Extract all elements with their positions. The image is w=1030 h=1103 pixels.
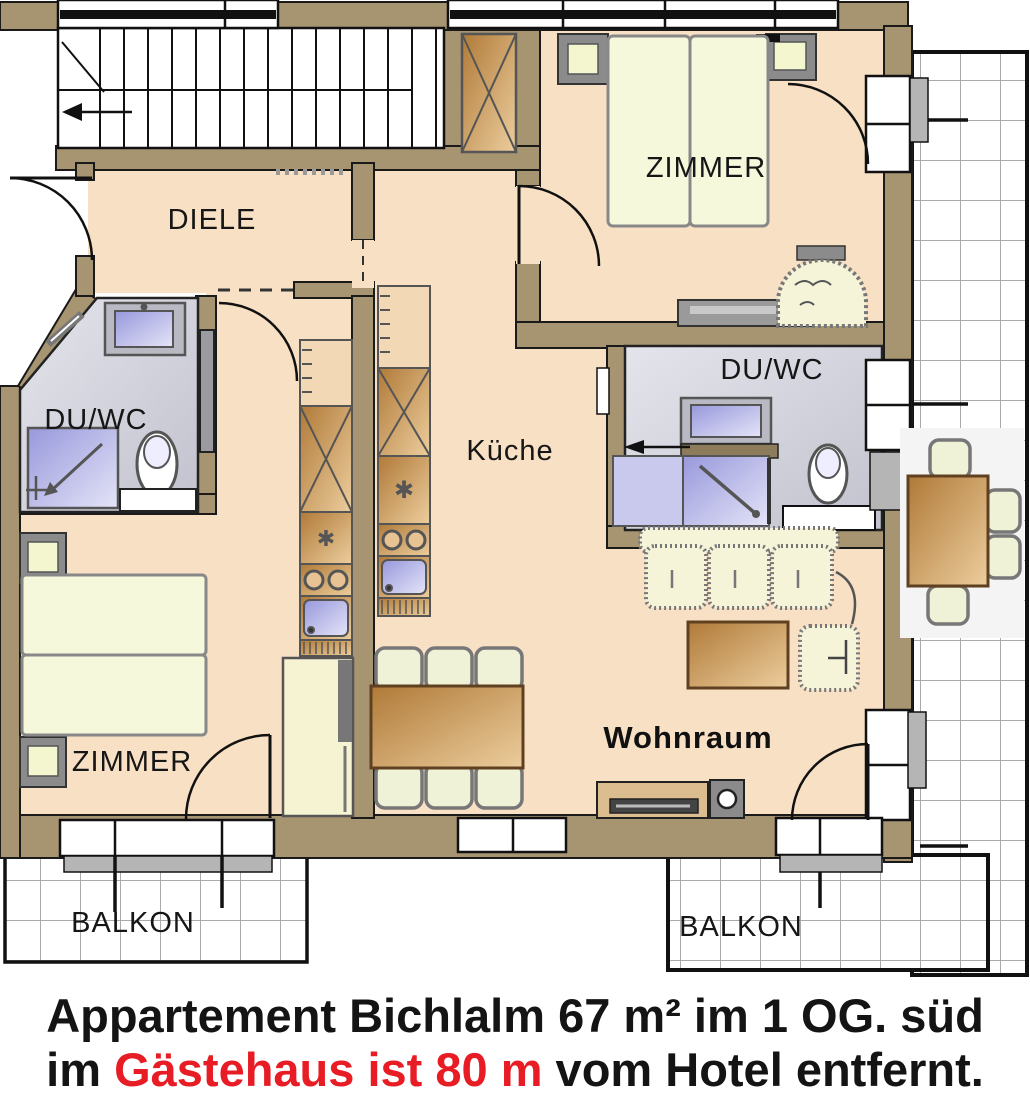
room-label-zimmer-left: ZIMMER bbox=[72, 746, 192, 778]
balcony-dining-set bbox=[900, 428, 1024, 638]
room-label-balkon-right: BALKON bbox=[679, 911, 803, 943]
wardrobe-icon bbox=[283, 658, 353, 816]
freezer-star-right: ✱ bbox=[394, 477, 414, 504]
room-label-diele: DIELE bbox=[168, 204, 257, 236]
dining-table-icon bbox=[371, 686, 523, 768]
room-label-zimmer-top: ZIMMER bbox=[646, 152, 766, 184]
room-label-kueche: Küche bbox=[466, 435, 553, 467]
room-label-wohnraum: Wohnraum bbox=[603, 720, 772, 755]
room-label-duwc-right: DU/WC bbox=[720, 354, 823, 386]
room-label-duwc-left: DU/WC bbox=[44, 404, 147, 436]
floorplan-drawing: ✱ ✱ bbox=[0, 0, 1030, 1098]
caption-line1: Appartement Bichlalm 67 m² im 1 OG. süd bbox=[46, 989, 984, 1042]
washbasin-right-icon bbox=[681, 398, 771, 444]
bath-mat-left bbox=[120, 489, 196, 511]
bathroom-right-niche bbox=[597, 368, 609, 414]
freezer-star-left: ✱ bbox=[317, 526, 335, 551]
bathroom-left-door bbox=[200, 330, 214, 452]
kitchen-counter-left bbox=[300, 340, 352, 656]
caption-line2-part3: vom Hotel entfernt. bbox=[543, 1043, 984, 1096]
entry-door bbox=[10, 178, 92, 260]
dining-set bbox=[371, 648, 523, 808]
caption-line2-highlight: Gästehaus ist 80 m bbox=[114, 1043, 542, 1096]
shower-right-icon bbox=[613, 456, 769, 526]
shower-left-icon bbox=[26, 428, 118, 508]
armchair-icon bbox=[800, 626, 858, 690]
balcony-table-icon bbox=[908, 476, 988, 586]
tall-cabinet-icon bbox=[462, 34, 516, 152]
toilet-left-icon bbox=[137, 432, 177, 496]
room-label-balkon-left: BALKON bbox=[71, 907, 195, 939]
caption-line2: im Gästehaus ist 80 m vom Hotel entfernt… bbox=[46, 1043, 984, 1096]
floorplan-page: ✱ ✱ bbox=[0, 0, 1030, 1098]
caption-line2-part1: im bbox=[46, 1043, 114, 1096]
washbasin-left-icon bbox=[105, 303, 185, 355]
toilet-right-icon bbox=[809, 445, 847, 503]
caption: Appartement Bichlalm 67 m² im 1 OG. süd … bbox=[46, 989, 984, 1096]
coffee-table-icon bbox=[688, 622, 788, 688]
tv-sideboard-icon bbox=[597, 780, 744, 818]
kitchen-counter-right bbox=[378, 286, 430, 616]
staircase bbox=[58, 28, 444, 148]
